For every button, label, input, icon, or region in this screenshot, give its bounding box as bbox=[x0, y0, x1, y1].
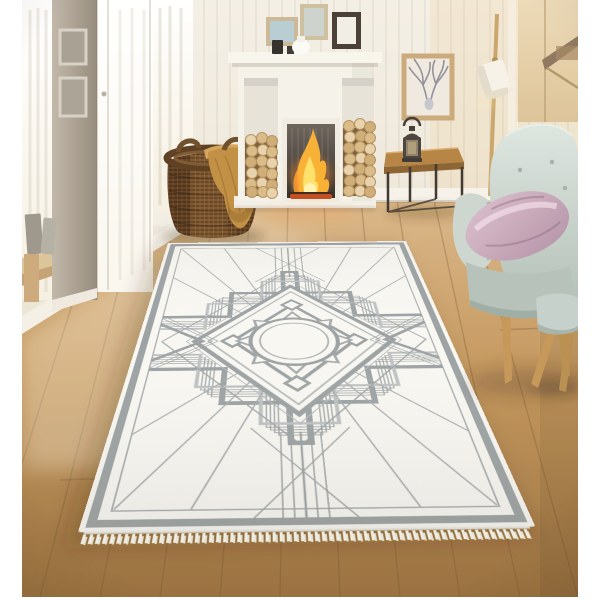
foreground bbox=[22, 0, 578, 597]
product-photo bbox=[22, 0, 578, 597]
image-canvas bbox=[0, 0, 600, 600]
warm-overlay bbox=[22, 0, 578, 597]
